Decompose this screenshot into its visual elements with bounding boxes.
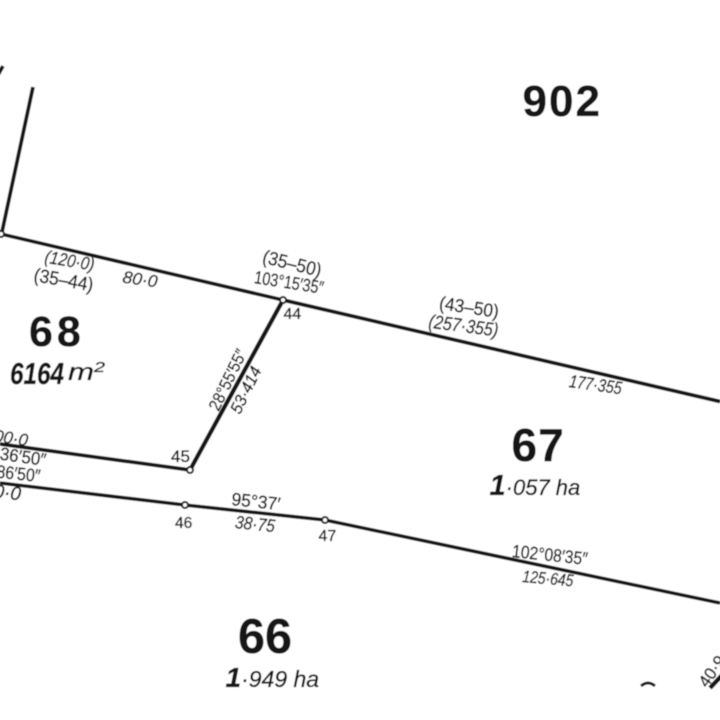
svg-text:6164: 6164 — [10, 356, 64, 391]
svg-text:47: 47 — [319, 528, 337, 545]
svg-text:2: 2 — [93, 359, 106, 376]
svg-text:67: 67 — [512, 419, 565, 471]
svg-text:68: 68 — [29, 308, 85, 356]
svg-text:66: 66 — [238, 610, 292, 664]
svg-text:45: 45 — [171, 447, 190, 466]
svg-text:38·75: 38·75 — [234, 512, 277, 536]
svg-text:44: 44 — [284, 306, 302, 323]
svg-text:0·0: 0·0 — [0, 482, 22, 506]
svg-text:1·057 ha: 1·057 ha — [490, 470, 581, 502]
svg-text:m: m — [68, 359, 94, 386]
svg-text:902: 902 — [523, 77, 602, 126]
svg-text:1·949 ha: 1·949 ha — [226, 662, 320, 693]
svg-text:46: 46 — [175, 515, 192, 532]
